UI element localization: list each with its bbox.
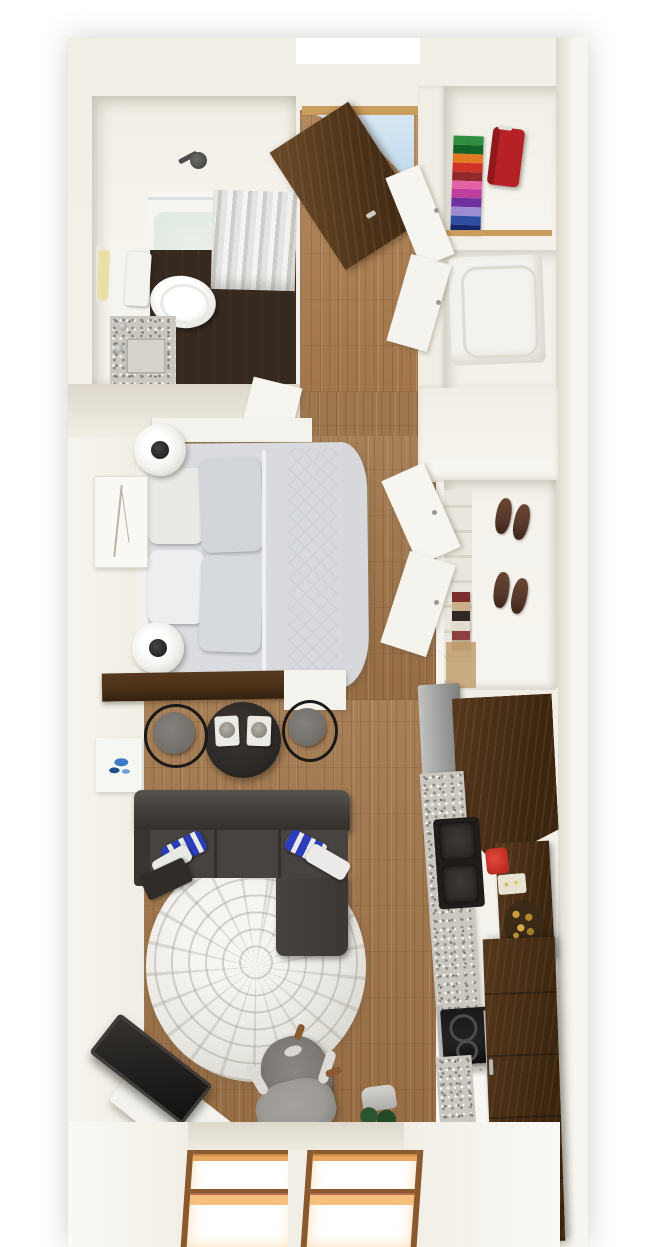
- color-stripe: [452, 621, 470, 631]
- floorplan-render: [0, 0, 650, 1247]
- color-stripe: [452, 631, 470, 641]
- branch-artwork: [94, 476, 148, 568]
- faucet-knob: [118, 322, 127, 331]
- door-knob: [434, 600, 439, 605]
- door-knob: [436, 300, 441, 305]
- pillow: [198, 555, 263, 653]
- washer-door: [460, 265, 539, 360]
- window-sash-rail: [310, 1189, 415, 1205]
- sofa-chaise: [276, 876, 348, 956]
- branch-stroke: [121, 491, 129, 543]
- toilet-tank: [124, 251, 152, 307]
- quilted-duvet-band: [288, 448, 338, 684]
- plate: [251, 722, 267, 738]
- window-sash-rail: [190, 1189, 295, 1205]
- closet-top-wall: [418, 388, 558, 482]
- red-kettle: [485, 847, 510, 875]
- window-rail: [193, 1150, 298, 1161]
- window-rail: [313, 1150, 418, 1161]
- duvet-fold: [262, 450, 266, 682]
- folded-clothes-stack: [450, 136, 483, 235]
- door-knob: [432, 510, 437, 515]
- pillow: [148, 468, 204, 544]
- kitchen-sink: [433, 817, 485, 910]
- shower-curtain: [211, 190, 298, 291]
- round-side-table: [134, 424, 186, 476]
- color-stripe: [452, 611, 470, 621]
- burner-ring: [449, 1013, 479, 1043]
- closet-floor-wood: [446, 642, 476, 688]
- stool-seat: [153, 712, 195, 754]
- pillow: [198, 457, 263, 553]
- cutting-board: [497, 873, 527, 895]
- round-side-table: [132, 622, 184, 674]
- cabinet-handle: [489, 1059, 494, 1075]
- color-stripe: [452, 592, 470, 602]
- sink-basin: [438, 821, 477, 861]
- bottom-right-wall: [404, 1122, 560, 1247]
- vanity-sink: [126, 338, 166, 374]
- door-threshold: [302, 106, 418, 115]
- towel: [97, 250, 110, 300]
- blue-artwork: [96, 738, 142, 792]
- right-outer-wall: [556, 38, 588, 1247]
- window-right: [301, 1150, 424, 1247]
- color-stripe: [452, 602, 470, 612]
- closet-shelf-edge: [446, 230, 552, 236]
- bottom-left-wall: [68, 1122, 188, 1247]
- stool-seat: [288, 708, 326, 746]
- plate: [219, 722, 235, 738]
- door-knob: [434, 208, 439, 213]
- media-console: [102, 670, 288, 701]
- window-left: [181, 1150, 304, 1247]
- shower-head: [190, 152, 207, 169]
- sink-basin: [441, 864, 480, 904]
- pillow: [148, 550, 204, 624]
- faucet-knob: [114, 344, 123, 353]
- sofa-back: [134, 790, 350, 832]
- top-wall-notch: [296, 38, 420, 64]
